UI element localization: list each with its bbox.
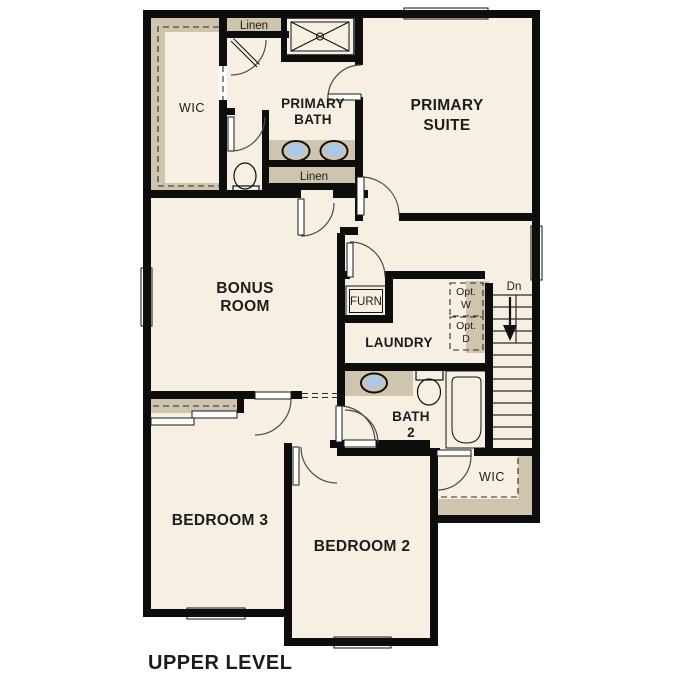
label-primary-suite-2: SUITE	[423, 117, 470, 134]
label-linen-bath: Linen	[300, 171, 328, 183]
label-bedroom3: BEDROOM 3	[172, 512, 269, 529]
label-furnace: FURN	[350, 296, 382, 308]
label-primary-suite-1: PRIMARY	[410, 97, 483, 114]
label-primary-bath-2: BATH	[294, 112, 332, 127]
wall-bedroom2-right	[430, 448, 438, 646]
label-bedroom2: BEDROOM 2	[314, 538, 411, 555]
label-primary-bath-1: PRIMARY	[281, 96, 345, 111]
label-opt-washer-2: W	[461, 299, 471, 311]
wall-primary-suite-south	[399, 213, 540, 221]
wall-bath2-south	[337, 448, 440, 456]
wall-stairs-west	[485, 283, 493, 448]
label-opt-dryer-2: D	[462, 333, 470, 345]
wic-bedroom2-shelf-bottom	[437, 499, 532, 515]
wic-bedroom2-shelf-right	[518, 456, 532, 499]
label-bath2-1: BATH	[392, 409, 430, 424]
label-wic-primary: WIC	[179, 101, 205, 115]
label-laundry: LAUNDRY	[365, 335, 433, 350]
floor-plan-page: WIC Linen PRIMARY BATH PRIMARY SUITE Lin…	[0, 0, 687, 687]
wall-wic2-bottom	[430, 515, 540, 523]
floor-plan-drawing: WIC Linen PRIMARY BATH PRIMARY SUITE Lin…	[0, 0, 687, 687]
label-bonus-room-1: BONUS	[216, 280, 273, 297]
wall-laundry-south	[337, 363, 485, 371]
label-wic-bedroom2: WIC	[479, 470, 505, 484]
label-linen-top: Linen	[240, 20, 268, 32]
label-bonus-room-2: ROOM	[220, 298, 269, 315]
label-opt-washer-1: Opt.	[456, 286, 476, 298]
wall-bedroom-divider	[284, 443, 292, 609]
label-opt-dryer-1: Opt.	[456, 320, 476, 332]
label-bath2-2: 2	[407, 425, 415, 440]
label-stairs-dn: Dn	[507, 281, 522, 293]
page-title: UPPER LEVEL	[148, 652, 292, 674]
wall-bonus-south	[143, 391, 255, 399]
